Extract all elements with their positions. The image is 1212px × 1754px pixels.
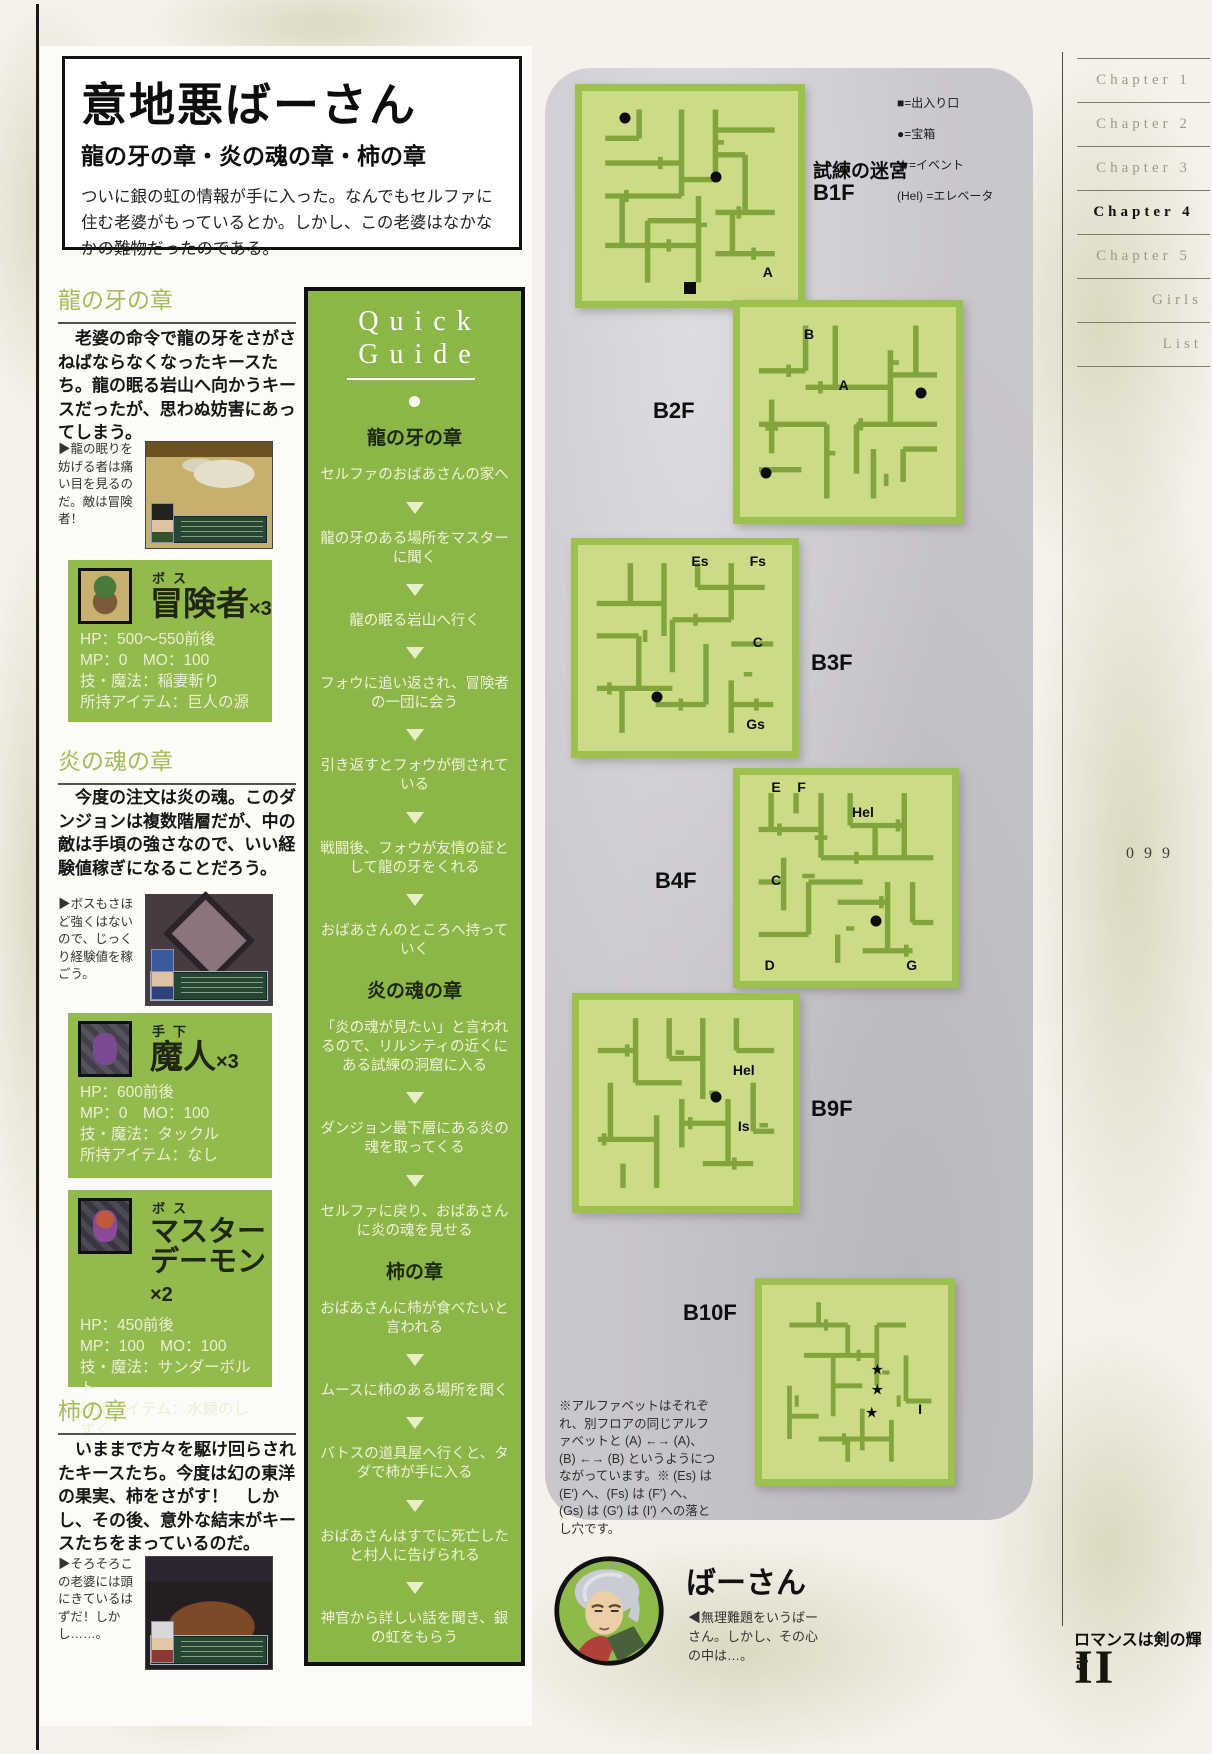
tab-list: List [1077, 323, 1210, 367]
page-title: 意地悪ばーさん [81, 69, 503, 135]
guide-step: 戦闘後、フォウが友情の証として龍の牙をくれる [316, 840, 514, 878]
map-letter: C [771, 872, 781, 888]
guide-step: セルファに戻り、おばあさんに炎の魂を見せる [316, 1203, 514, 1241]
enemy-count: ×3 [249, 598, 272, 620]
screenshot-caption-3: ▶そろそろこの老婆には頭にきているはずだ！しかし……。 [58, 1556, 144, 1644]
enemy-sprite-icon [78, 1021, 132, 1077]
maze-drawing [581, 1002, 791, 1204]
treasure-marker [620, 113, 631, 124]
map-b3f: Es Fs C Gs [571, 538, 799, 758]
maze-drawing [764, 1287, 946, 1477]
map-b2f: B A [733, 300, 963, 524]
map-elevator-label: Hel [733, 1062, 755, 1078]
guide-step: 「炎の魂が見たい」と言われるので、リルシティの近くにある試練の洞窟に入る [316, 1019, 514, 1076]
stat-item: 所持アイテム：なし [80, 1145, 262, 1166]
character-face [151, 503, 174, 543]
treasure-marker [916, 388, 927, 399]
map-letter: A [763, 264, 773, 280]
down-arrow-icon [406, 1582, 424, 1594]
game-screenshot-dragon [145, 441, 273, 549]
stat-hp: HP：450前後 [80, 1315, 262, 1336]
floor-label-b2f: B2F [653, 398, 695, 424]
map-b4f: E F Hel C D G [733, 768, 959, 988]
guide-step: ムースに柿のある場所を聞く [316, 1382, 514, 1401]
treasure-marker [710, 1091, 721, 1102]
legend-entrance: ■=出入り口 [897, 96, 993, 112]
enemy-name-text: 魔人 [150, 1038, 216, 1075]
stat-item: 所持アイテム：巨人の源 [80, 692, 262, 713]
enemy-name: 魔人×3 [150, 1040, 278, 1074]
floor-label-b9f: B9F [811, 1096, 853, 1122]
guidebook-page: 意地悪ばーさん 龍の牙の章・炎の魂の章・柿の章 ついに銀の虹の情報が手に入った。… [0, 0, 1212, 1754]
guide-step: バトスの道具屋へ行くと、タダで柿が手に入る [316, 1445, 514, 1483]
tab-chapter-3: Chapter 3 [1077, 147, 1210, 191]
guide-step: 龍の眠る岩山へ行く [316, 612, 514, 631]
character-face [151, 949, 174, 999]
enemy-name-text: 冒険者 [150, 585, 249, 622]
map-b10f: ★ ★ ★ I [755, 1278, 955, 1486]
section-body-flame-soul: 今度の注文は炎の魂。このダンジョンは複数階層だが、中の敵は手頃の強さなので、いい… [58, 786, 300, 880]
enemy-name: マスターデーモン×2 [150, 1217, 278, 1307]
section-heading-persimmon: 柿の章 [58, 1392, 296, 1435]
down-arrow-icon [406, 1175, 424, 1187]
guide-step: 龍の牙のある場所をマスターに聞く [316, 530, 514, 568]
down-arrow-icon [406, 647, 424, 659]
map-letter: A [839, 377, 849, 393]
stat-skill: 技・魔法：タックル [80, 1124, 262, 1145]
legend-elevator: (Hel) =エレベータ [897, 189, 993, 205]
title-underline [347, 378, 475, 380]
down-arrow-icon [406, 1354, 424, 1366]
enemy-stats: HP：500〜550前後 MP：0 MO：100 技・魔法：稲妻斬り 所持アイテ… [80, 629, 262, 713]
quick-guide-title-line2: Guide [347, 338, 481, 371]
treasure-marker [870, 916, 881, 927]
maze-drawing [742, 309, 954, 515]
page-number: 099 [1126, 845, 1180, 863]
stat-mp-mo: MP：100 MO：100 [80, 1336, 262, 1357]
game-screenshot-dungeon [145, 894, 273, 1006]
event-marker: ★ [865, 1406, 878, 1421]
barsan-portrait [552, 1554, 666, 1668]
down-arrow-icon [406, 1417, 424, 1429]
page-edge-rule [36, 4, 39, 1750]
character-caption: ◀無理難題をいうばーさん。しかし、その心の中は…。 [688, 1608, 830, 1665]
floor-label-b10f: B10F [683, 1300, 737, 1326]
legend-treasure: ●=宝箱 [897, 127, 993, 143]
stat-hp: HP：600前後 [80, 1082, 262, 1103]
enemy-role: ボス [152, 1198, 262, 1217]
map-letter: D [765, 957, 775, 973]
entrance-marker [684, 282, 696, 294]
floor-label-b3f: B3F [811, 650, 853, 676]
dungeon-maps-panel: ■=出入り口 ●=宝箱 ★=イベント (Hel) =エレベータ A 試練の迷宮 … [545, 68, 1033, 1520]
down-arrow-icon [406, 502, 424, 514]
quick-guide-title-line1: Quick [347, 305, 481, 338]
tab-chapter-4-active: Chapter 4 [1077, 191, 1210, 235]
guide-chapter-header: 炎の魂の章 [367, 976, 462, 1003]
sidebar-divider [1062, 52, 1063, 1626]
stat-mp-mo: MP：0 MO：100 [80, 1103, 262, 1124]
guide-chapter-header: 龍の牙の章 [367, 423, 462, 450]
down-arrow-icon [406, 1500, 424, 1512]
enemy-box-adventurer: ボス 冒険者×3 HP：500〜550前後 MP：0 MO：100 技・魔法：稲… [68, 560, 272, 722]
map-b9f: Hel Is [572, 993, 800, 1213]
map-legend: ■=出入り口 ●=宝箱 ★=イベント (Hel) =エレベータ [897, 80, 993, 220]
map-b1f: A [575, 84, 805, 308]
dungeon-room [171, 899, 246, 974]
floor-label-b4f: B4F [655, 868, 697, 894]
map-letter: Fs [750, 553, 766, 569]
guide-step: セルファのおばあさんの家へ [316, 466, 514, 485]
map-letter: G [906, 957, 917, 973]
dungeon-name: 試練の迷宮 [813, 156, 908, 183]
event-marker: ★ [871, 1363, 884, 1378]
map-letter: I [918, 1401, 922, 1417]
screenshot-caption-1: ▶龍の眠りを妨げる者は痛い目を見るのだ。敵は冒険者！ [58, 441, 144, 529]
map-letter: C [753, 634, 763, 650]
map-letter: F [797, 779, 806, 795]
floor-label-b1f: B1F [813, 180, 855, 206]
map-letter: Es [691, 553, 708, 569]
enemy-name-text: マスターデーモン [150, 1216, 266, 1278]
down-arrow-icon [406, 584, 424, 596]
game-screenshot-shop [145, 1556, 273, 1670]
map-letter: Is [738, 1118, 750, 1134]
stat-hp: HP：500〜550前後 [80, 629, 262, 650]
section-heading-flame-soul: 炎の魂の章 [58, 742, 296, 785]
map-letter: Gs [746, 716, 765, 732]
enemy-name: 冒険者×3 [150, 587, 278, 621]
guide-step: おばあさんのところへ持っていく [316, 922, 514, 960]
guide-chapter-header: 柿の章 [386, 1257, 443, 1284]
page-subtitle: 龍の牙の章・炎の魂の章・柿の章 [81, 137, 503, 171]
map-letter: B [804, 326, 814, 342]
guide-step: おばあさんはすでに死亡したと村人に告げられる [316, 1528, 514, 1566]
down-arrow-icon [406, 894, 424, 906]
tab-girls: Girls [1077, 279, 1210, 323]
character-name: ばーさん [686, 1558, 806, 1602]
title-box: 意地悪ばーさん 龍の牙の章・炎の魂の章・柿の章 ついに銀の虹の情報が手に入った。… [62, 56, 522, 250]
screenshot-caption-2: ▶ボスもさほど強くはないので、じっくり経験値を稼ごう。 [58, 896, 144, 984]
stat-mp-mo: MP：0 MO：100 [80, 650, 262, 671]
tab-chapter-5: Chapter 5 [1077, 235, 1210, 279]
guide-step: フォウに追い返され、冒険者の一団に会う [316, 675, 514, 713]
down-arrow-icon [406, 812, 424, 824]
event-marker: ★ [871, 1382, 884, 1397]
tab-chapter-2: Chapter 2 [1077, 103, 1210, 147]
enemy-sprite-icon [78, 568, 132, 624]
map-footnote: ※アルファベットはそれぞれ、別フロアの同じアルファベットと (A) ←→ (A)… [559, 1398, 719, 1538]
quick-guide-title: Quick Guide [347, 305, 481, 380]
map-letter: E [771, 779, 780, 795]
intro-text: ついに銀の虹の情報が手に入った。なんでもセルファに住む老婆がもっているとか。しか… [81, 184, 503, 262]
treasure-marker [760, 467, 771, 478]
enemy-count: ×3 [216, 1051, 239, 1073]
tab-chapter-1: Chapter 1 [1077, 58, 1210, 103]
guide-step: 神官から詳しい話を聞き、銀の虹をもらう [316, 1610, 514, 1648]
chapter-tabs: Chapter 1 Chapter 2 Chapter 3 Chapter 4 … [1077, 58, 1210, 367]
section-body-persimmon: いままで方々を駆け回らされたキースたち。今度は幻の東洋の果実、柿をさがす！ しか… [58, 1438, 300, 1556]
enemy-sprite-icon [78, 1198, 132, 1254]
flow-start-dot [409, 396, 420, 407]
legend-event: ★=イベント [897, 158, 993, 174]
book-logo-numeral: II [1074, 1640, 1115, 1695]
section-body-dragon-fang: 老婆の命令で龍の牙をさがさねばならなくなったキースたち。龍の眠る岩山へ向かうキー… [58, 327, 300, 445]
quick-guide-panel: Quick Guide 龍の牙の章 セルファのおばあさんの家へ 龍の牙のある場所… [304, 287, 525, 1666]
enemy-box-master-demon: ボス マスターデーモン×2 HP：450前後 MP：100 MO：100 技・魔… [68, 1190, 272, 1387]
down-arrow-icon [406, 729, 424, 741]
guide-step: おばあさんに柿が食べたいと言われる [316, 1300, 514, 1338]
enemy-stats: HP：600前後 MP：0 MO：100 技・魔法：タックル 所持アイテム：なし [80, 1082, 262, 1166]
guide-step: 引き返すとフォウが倒されている [316, 757, 514, 795]
section-heading-dragon-fang: 龍の牙の章 [58, 281, 296, 324]
enemy-box-majin: 手下 魔人×3 HP：600前後 MP：0 MO：100 技・魔法：タックル 所… [68, 1013, 272, 1178]
treasure-marker [710, 172, 721, 183]
treasure-marker [652, 692, 663, 703]
enemy-count: ×2 [150, 1284, 173, 1306]
stat-skill: 技・魔法：稲妻斬り [80, 671, 262, 692]
down-arrow-icon [406, 1092, 424, 1104]
guide-step: ダンジョン最下層にある炎の魂を取ってくる [316, 1120, 514, 1158]
map-elevator-label: Hel [852, 804, 874, 820]
character-face [151, 1621, 174, 1663]
